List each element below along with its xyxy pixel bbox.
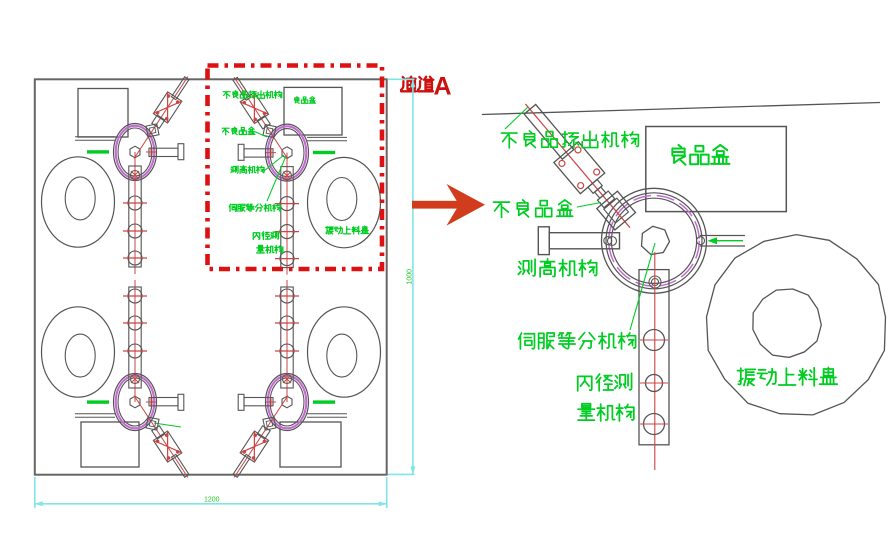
svg-text:1200: 1200 — [204, 497, 220, 504]
svg-text:1000: 1000 — [407, 269, 414, 285]
svg-text:A: A — [434, 73, 452, 101]
